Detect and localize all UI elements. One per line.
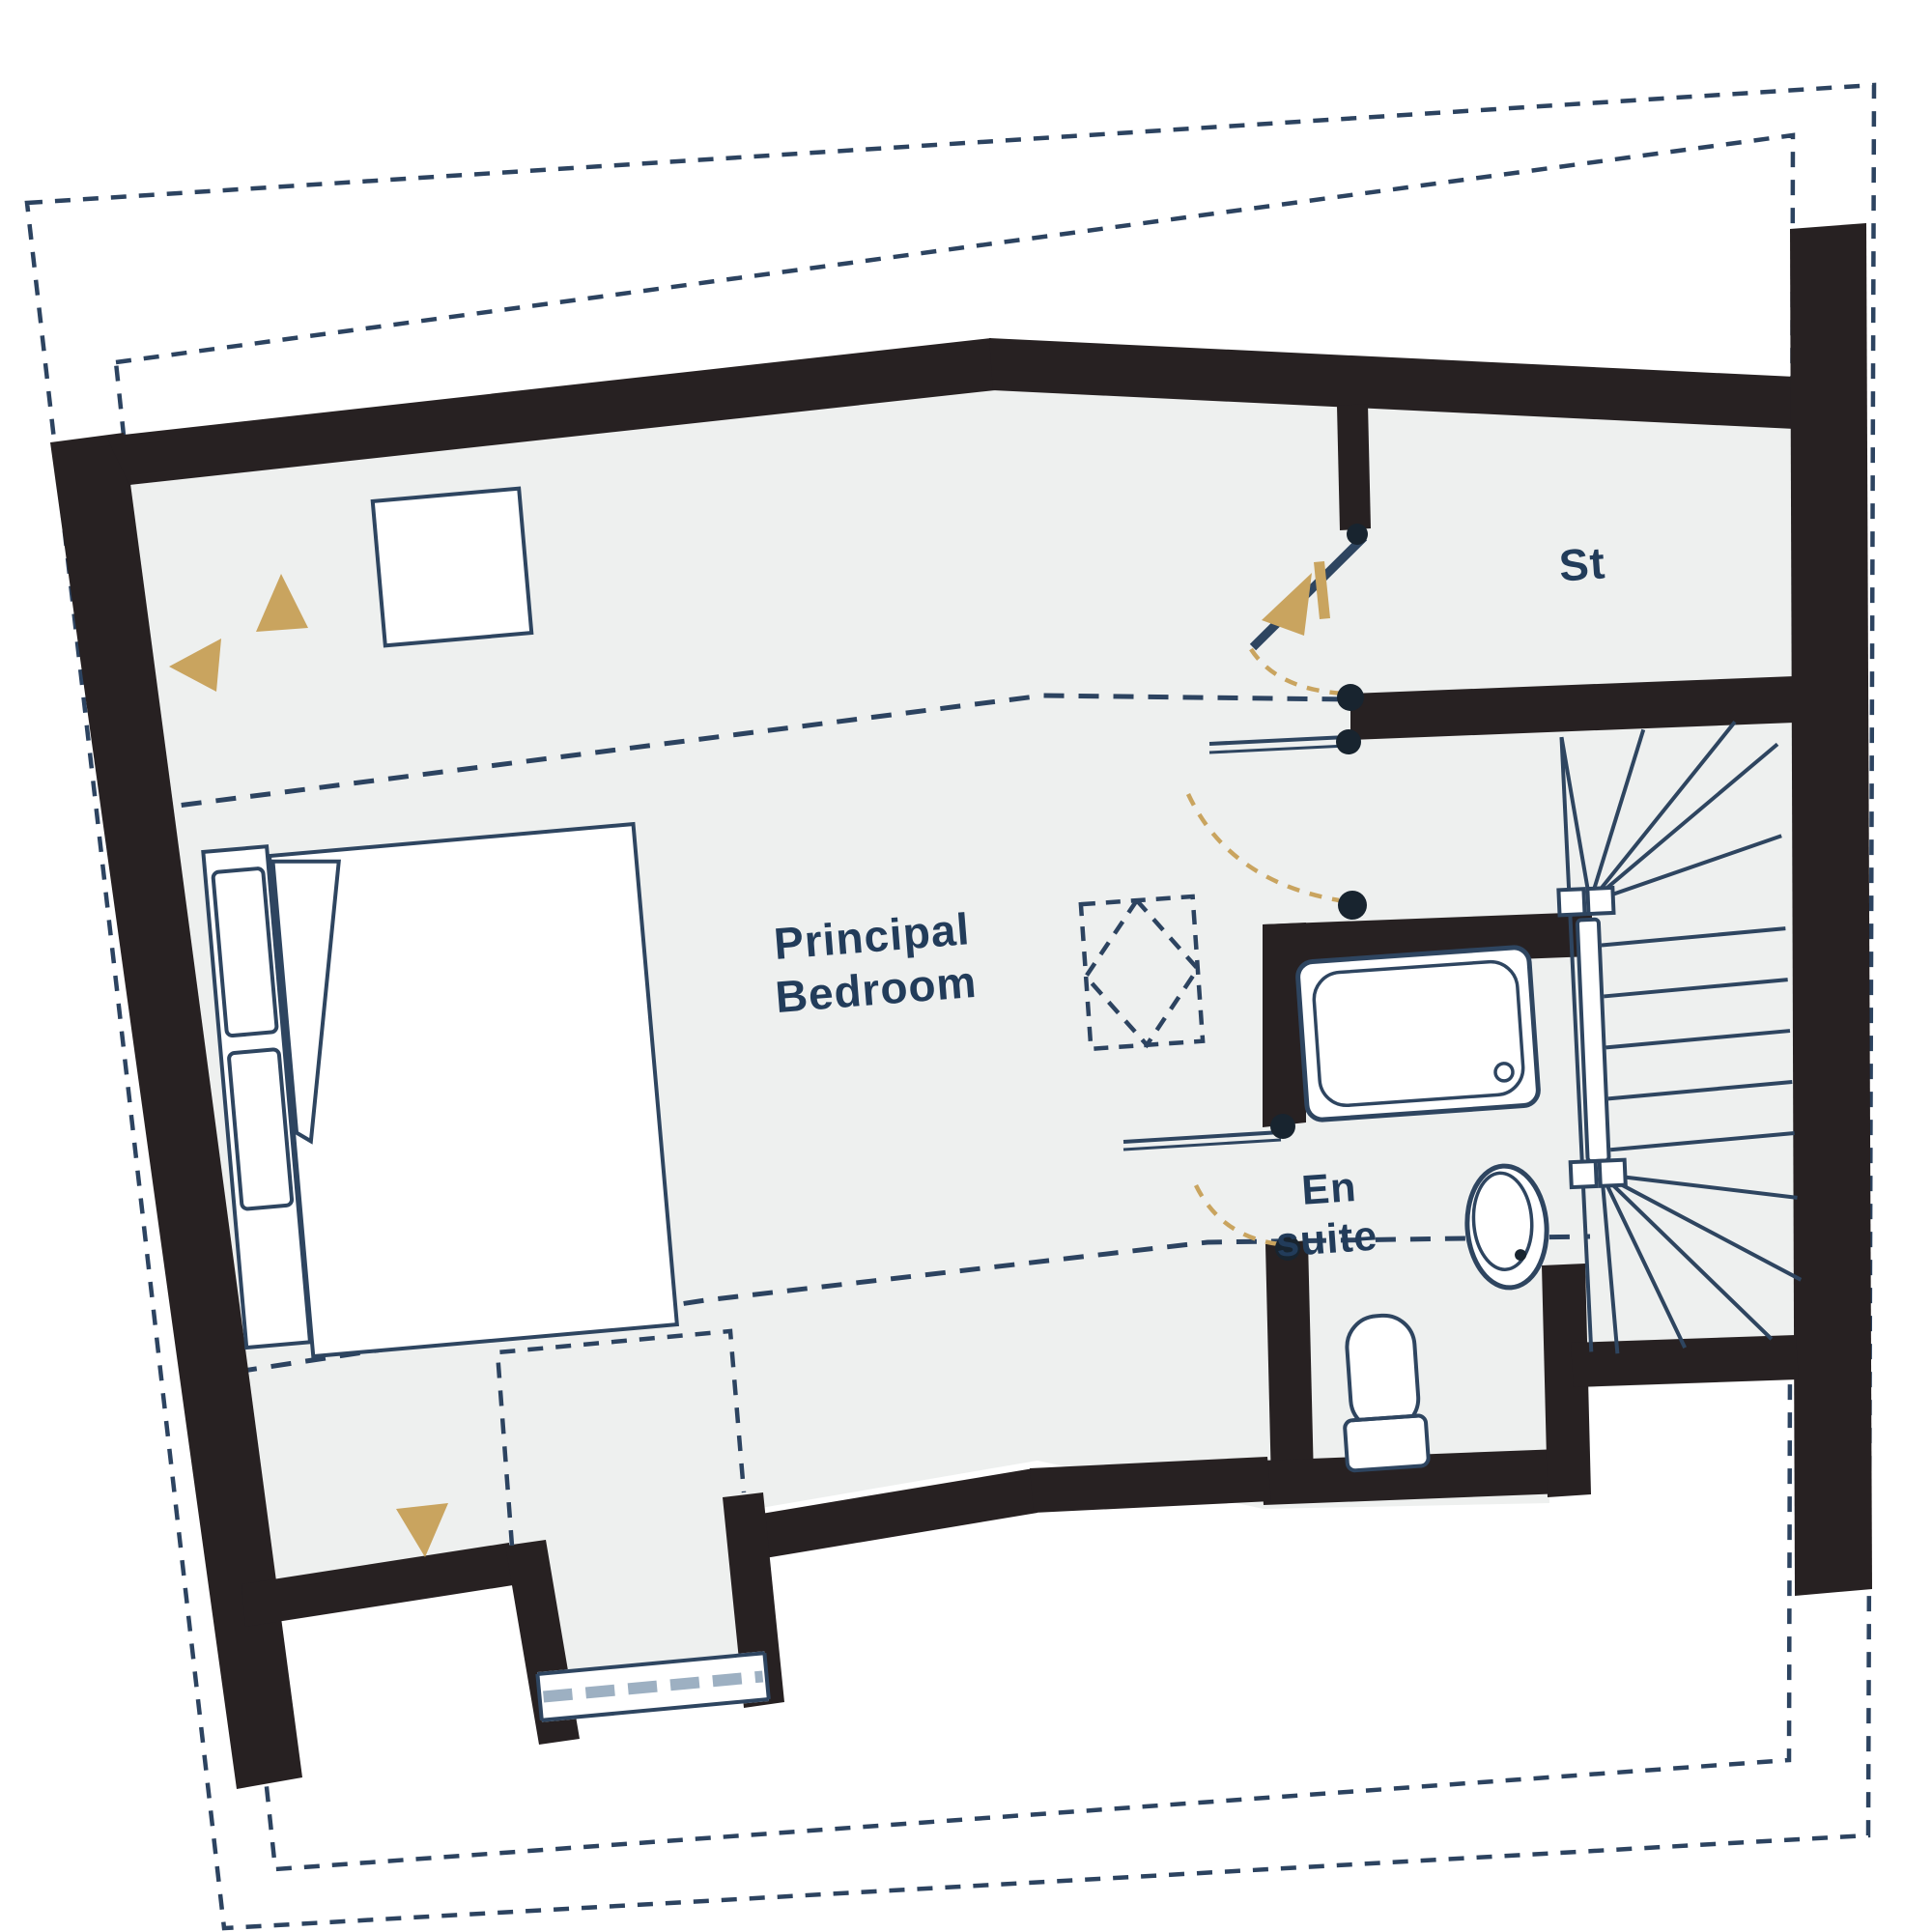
label-storage: St xyxy=(1557,537,1607,590)
toilet xyxy=(1337,1313,1429,1470)
stair-newel-bottom-right xyxy=(1600,1160,1626,1186)
floor-plan-svg: Principal Bedroom St En suite xyxy=(0,0,1932,1932)
door-latch-dot xyxy=(1338,891,1367,920)
rooflight xyxy=(373,489,531,646)
bath-tub xyxy=(1297,947,1540,1121)
wall-stairs-bottom xyxy=(1571,1335,1799,1387)
label-en-suite-line1: En xyxy=(1300,1164,1358,1214)
door-jamb-dot xyxy=(1337,684,1364,711)
stair-newel-bottom-left xyxy=(1571,1161,1597,1187)
toilet-cistern xyxy=(1345,1415,1429,1471)
stair-newel-top-left xyxy=(1558,889,1584,915)
wall-right xyxy=(1790,223,1872,1596)
wall-ensuite-left-lower xyxy=(1265,1240,1314,1485)
floor-plan-page: Principal Bedroom St En suite xyxy=(0,0,1932,1932)
door-hinge-dot xyxy=(1270,1114,1295,1139)
door-hinge-dot xyxy=(1336,729,1361,754)
label-en-suite-line2: suite xyxy=(1274,1213,1378,1266)
double-bed xyxy=(203,814,676,1362)
stair-newel-top-right xyxy=(1587,888,1613,914)
toilet-bowl xyxy=(1345,1314,1420,1433)
wall-door-stub xyxy=(1337,404,1371,530)
